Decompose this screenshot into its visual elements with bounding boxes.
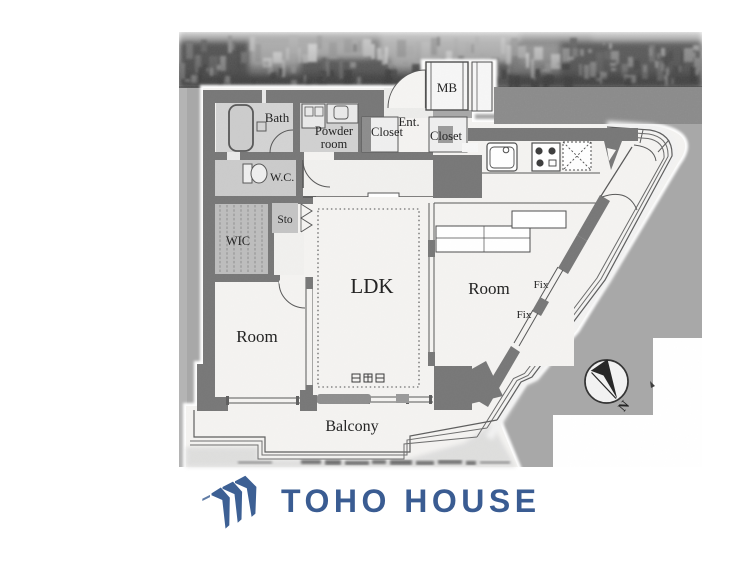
svg-text:TOHO HOUSE: TOHO HOUSE [281, 483, 541, 519]
